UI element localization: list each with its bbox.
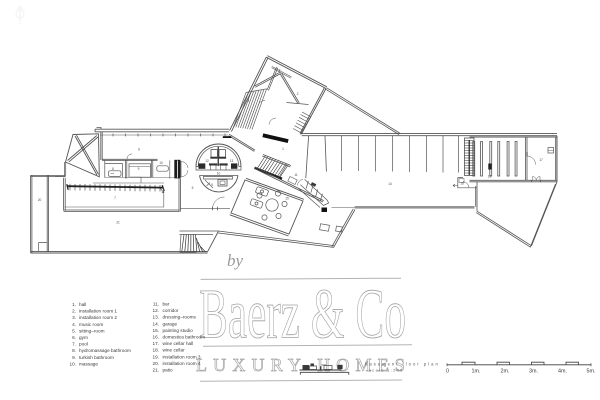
svg-text:20: 20 — [38, 198, 42, 202]
svg-text:by: by — [227, 251, 244, 270]
svg-text:15: 15 — [285, 197, 289, 201]
svg-text:pool: pool — [79, 342, 88, 347]
svg-text:7.: 7. — [72, 342, 76, 347]
svg-text:16.: 16. — [152, 335, 159, 340]
svg-text:wine cellar hall: wine cellar hall — [163, 341, 194, 346]
svg-text:7: 7 — [114, 196, 116, 200]
svg-text:10: 10 — [159, 161, 163, 165]
svg-text:gym: gym — [79, 335, 88, 340]
svg-text:12: 12 — [205, 159, 209, 163]
svg-text:18: 18 — [488, 175, 492, 179]
svg-text:17.: 17. — [152, 341, 159, 346]
svg-text:6.: 6. — [72, 335, 76, 340]
svg-text:1m.: 1m. — [472, 368, 481, 374]
svg-text:8.: 8. — [72, 348, 76, 353]
svg-text:17: 17 — [539, 158, 543, 162]
svg-text:6: 6 — [138, 148, 140, 152]
svg-text:scale 1:200: scale 1:200 — [369, 368, 404, 372]
svg-text:Baerz & Co: Baerz & Co — [199, 276, 406, 354]
svg-text:2.: 2. — [72, 309, 76, 314]
svg-text:5: 5 — [192, 186, 194, 190]
svg-text:18.: 18. — [152, 348, 159, 353]
svg-text:12.: 12. — [152, 308, 159, 313]
svg-text:9: 9 — [138, 167, 140, 171]
svg-text:patio: patio — [163, 368, 174, 373]
svg-text:3.: 3. — [72, 315, 76, 320]
svg-text:19.: 19. — [152, 354, 159, 359]
svg-text:15.: 15. — [152, 328, 159, 333]
svg-text:10.: 10. — [69, 361, 76, 366]
svg-text:3m.: 3m. — [529, 368, 538, 374]
svg-text:9: 9 — [211, 183, 213, 187]
svg-text:1: 1 — [282, 147, 284, 151]
svg-text:10: 10 — [217, 172, 221, 176]
svg-text:2m.: 2m. — [501, 368, 510, 374]
svg-text:3: 3 — [279, 69, 281, 73]
svg-text:5.: 5. — [72, 328, 76, 333]
svg-text:installation room 1: installation room 1 — [79, 309, 117, 314]
svg-text:4.: 4. — [72, 322, 76, 327]
svg-text:corridor: corridor — [163, 308, 179, 313]
svg-text:installation room 4: installation room 4 — [163, 361, 201, 366]
svg-text:painting studio: painting studio — [163, 328, 194, 333]
svg-text:13: 13 — [230, 159, 234, 163]
svg-text:music room: music room — [79, 322, 103, 327]
svg-text:20.: 20. — [152, 361, 159, 366]
svg-text:2: 2 — [297, 92, 299, 96]
svg-text:installation room 2: installation room 2 — [79, 315, 117, 320]
svg-text:0: 0 — [446, 368, 449, 374]
svg-text:basement floor plan: basement floor plan — [365, 362, 440, 367]
svg-text:1.: 1. — [72, 302, 76, 307]
svg-text:dressing–rooms: dressing–rooms — [163, 315, 197, 320]
svg-text:14: 14 — [388, 182, 392, 186]
svg-text:bar: bar — [163, 302, 170, 307]
svg-text:garage: garage — [163, 321, 178, 326]
svg-text:13.: 13. — [152, 315, 159, 320]
svg-text:4: 4 — [248, 99, 250, 103]
svg-text:massage: massage — [79, 361, 98, 366]
svg-text:hydromassage bathroom: hydromassage bathroom — [79, 348, 131, 353]
svg-text:5m.: 5m. — [587, 368, 596, 374]
svg-text:domestica bathroom: domestica bathroom — [163, 335, 206, 340]
svg-text:4m.: 4m. — [558, 368, 567, 374]
svg-text:16: 16 — [460, 182, 464, 186]
svg-text:wine cellar: wine cellar — [163, 348, 186, 353]
svg-text:21.: 21. — [152, 368, 159, 373]
svg-text:11: 11 — [294, 173, 298, 177]
svg-text:8: 8 — [112, 167, 114, 171]
svg-text:14.: 14. — [152, 321, 159, 326]
svg-text:sitting–room: sitting–room — [79, 328, 105, 333]
svg-text:11.: 11. — [153, 302, 159, 307]
svg-text:hall: hall — [79, 302, 86, 307]
svg-text:installation room 3: installation room 3 — [163, 354, 201, 359]
svg-text:21: 21 — [116, 221, 120, 225]
svg-text:9.: 9. — [72, 355, 76, 360]
svg-text:turkish bathroom: turkish bathroom — [79, 355, 114, 360]
